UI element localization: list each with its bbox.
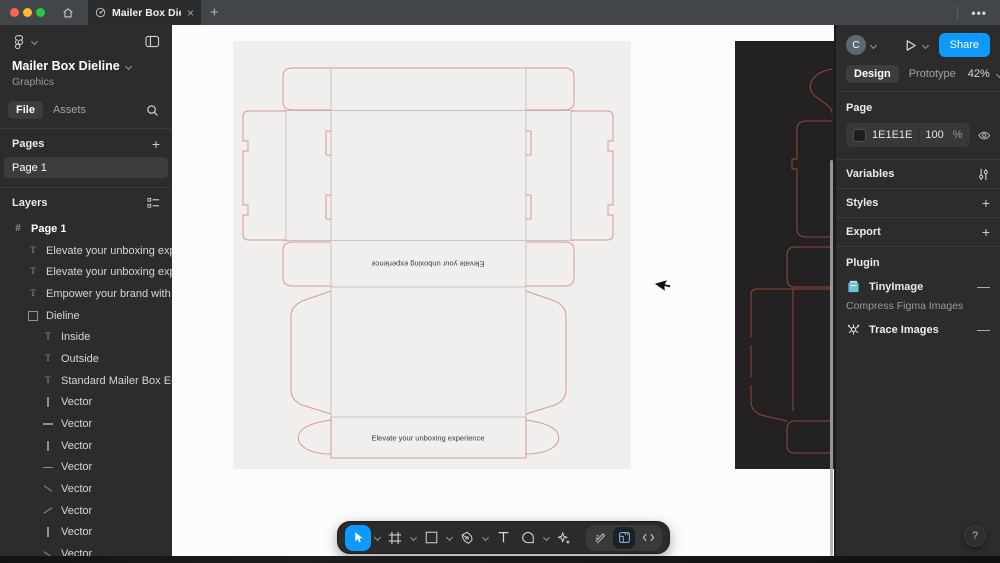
layer-row-page-1[interactable]: #Page 1 <box>0 218 172 240</box>
text-layer-icon: T <box>42 331 54 343</box>
layer-label: Elevate your unboxing experience <box>46 266 172 278</box>
project-name[interactable]: Graphics <box>0 73 172 94</box>
text-layer-icon: T <box>27 245 39 257</box>
shape-tool-chevron-icon[interactable] <box>444 526 454 550</box>
close-tab-icon[interactable]: × <box>187 6 194 20</box>
layers-list: #Page 1TElevate your unboxing experience… <box>0 216 172 556</box>
plugin-section-header: Plugin <box>846 257 990 269</box>
plugin-row-tinyimage[interactable]: TinyImage — <box>836 273 1000 300</box>
rectangle-tool-icon <box>425 531 438 544</box>
layer-label: Page 1 <box>31 223 66 235</box>
present-play-icon[interactable] <box>903 38 918 53</box>
code-icon <box>642 531 655 544</box>
variables-sliders-icon[interactable] <box>977 168 990 181</box>
plugin-row-trace-images[interactable]: Trace Images — <box>836 316 1000 343</box>
text-layer-icon: T <box>42 375 54 387</box>
overflow-menu-button[interactable]: ••• <box>958 6 1000 20</box>
help-button[interactable]: ? <box>964 525 986 547</box>
actions-tool-button[interactable] <box>552 526 576 550</box>
dieline-artwork <box>233 41 631 469</box>
layer-row-vector[interactable]: Vector <box>0 500 172 522</box>
layer-row-inside[interactable]: TInside <box>0 326 172 348</box>
artboard-dieline-dark[interactable] <box>735 41 834 469</box>
toggle-sidebar-icon[interactable] <box>145 35 160 48</box>
visibility-eye-icon[interactable] <box>978 130 990 141</box>
variables-section-header[interactable]: Variables <box>846 168 894 180</box>
page-section-header: Page <box>846 102 990 114</box>
rect-layer-icon <box>27 310 39 322</box>
layer-label: Dieline <box>46 310 80 322</box>
layer-label: Vector <box>61 396 92 408</box>
text-layer-icon: T <box>42 353 54 365</box>
dev-mode-group <box>586 525 662 551</box>
file-tab[interactable]: Mailer Box Dieline × <box>88 0 201 25</box>
canvas[interactable]: Elevate your unboxing experience Elevate… <box>172 25 834 556</box>
text-tool-button[interactable] <box>491 526 515 550</box>
frame-layer-icon: # <box>12 223 24 235</box>
minimize-window-button[interactable] <box>23 8 32 17</box>
layer-label: Elevate your unboxing experience <box>46 245 172 257</box>
layer-row-dieline[interactable]: Dieline <box>0 305 172 327</box>
plugin-name: Trace Images <box>869 324 939 336</box>
page-item-page-1[interactable]: Page 1 <box>4 157 168 178</box>
layer-label: Vector <box>61 526 92 538</box>
layer-label: Inside <box>61 331 90 343</box>
pen-tool-chevron-icon[interactable] <box>480 526 490 550</box>
layer-label: Vector <box>61 483 92 495</box>
layer-row-elevate-your-unboxing-experience[interactable]: TElevate your unboxing experience <box>0 261 172 283</box>
hline-layer-icon <box>42 461 54 473</box>
layer-label: Vector <box>61 418 92 430</box>
shape-tool-button[interactable] <box>419 526 443 550</box>
trace-images-plugin-icon <box>846 322 861 337</box>
menu-chevron-icon[interactable] <box>31 38 38 45</box>
tab-file[interactable]: File <box>8 101 43 119</box>
artboard-dieline-light[interactable]: Elevate your unboxing experience Elevate… <box>233 41 631 469</box>
layer-row-elevate-your-unboxing-experience[interactable]: TElevate your unboxing experience <box>0 240 172 262</box>
titlebar: Mailer Box Dieline × + ••• <box>0 0 1000 25</box>
layer-row-vector[interactable]: Vector <box>0 392 172 414</box>
right-sidebar: C Share Design Prototype 42% Page <box>834 25 1000 556</box>
remove-plugin-button[interactable]: — <box>977 322 990 337</box>
fullscreen-window-button[interactable] <box>36 8 45 17</box>
add-export-button[interactable]: + <box>982 227 990 237</box>
design-file-icon <box>95 7 106 18</box>
sparkle-icon <box>557 531 571 545</box>
layer-label: Vector <box>61 440 92 452</box>
canvas-text-rotated[interactable]: Elevate your unboxing experience <box>372 260 485 269</box>
dev-mode-toggle[interactable] <box>613 527 635 549</box>
figma-menu-icon[interactable] <box>12 34 27 49</box>
home-icon <box>61 6 75 20</box>
layer-row-vector[interactable]: Vector <box>0 413 172 435</box>
move-tool-button[interactable] <box>345 525 371 551</box>
remove-plugin-button[interactable]: — <box>977 279 990 294</box>
dline-layer-icon <box>42 548 54 556</box>
home-button[interactable] <box>61 6 75 20</box>
layer-label: Empower your brand with custom <box>46 288 172 300</box>
layer-label: Vector <box>61 505 92 517</box>
layer-row-vector[interactable]: Vector <box>0 478 172 500</box>
share-button[interactable]: Share <box>939 33 990 57</box>
bottom-toolbar <box>337 521 670 554</box>
account-chevron-icon[interactable] <box>870 42 877 49</box>
present-chevron-icon[interactable] <box>922 42 929 49</box>
dieline-dark-artwork <box>735 41 834 469</box>
pen-tool-button[interactable] <box>455 526 479 550</box>
tab-design[interactable]: Design <box>846 65 899 83</box>
ruler-icon <box>618 531 631 544</box>
file-name-title[interactable]: Mailer Box Dieline <box>12 59 120 73</box>
layer-label: Standard Mailer Box E-flute ( <box>61 375 172 387</box>
pages-header: Pages <box>12 138 44 150</box>
layer-row-outside[interactable]: TOutside <box>0 348 172 370</box>
layers-options-icon[interactable] <box>147 197 160 209</box>
vline-layer-icon <box>42 440 54 452</box>
layer-row-vector[interactable]: Vector <box>0 435 172 457</box>
marker-icon <box>594 531 607 544</box>
pen-tool-icon <box>460 531 474 545</box>
layer-row-empower-your-brand-with-custom[interactable]: TEmpower your brand with custom <box>0 283 172 305</box>
plugin-name: TinyImage <box>869 281 923 293</box>
layer-row-vector[interactable]: Vector <box>0 543 172 556</box>
color-swatch[interactable] <box>853 129 866 142</box>
hline-layer-icon <box>42 418 54 430</box>
layer-label: Outside <box>61 353 99 365</box>
move-tool-chevron-icon[interactable] <box>372 526 382 550</box>
code-view-button[interactable] <box>637 527 659 549</box>
tinyimage-plugin-icon <box>846 279 861 294</box>
layers-header: Layers <box>12 197 47 209</box>
frame-tool-button[interactable] <box>383 526 407 550</box>
zoom-level[interactable]: 42% <box>968 68 990 80</box>
plugin-description: Compress Figma Images <box>836 300 1000 316</box>
figma-app-window: Mailer Box Dieline × + ••• Mailer Box Di… <box>0 0 1000 563</box>
layer-row-vector[interactable]: Vector <box>0 522 172 544</box>
canvas-scrollbar[interactable] <box>830 160 833 556</box>
vline-layer-icon <box>42 526 54 538</box>
file-tab-title: Mailer Box Dieline <box>112 7 181 19</box>
file-name-chevron-icon[interactable] <box>125 63 132 70</box>
tab-assets[interactable]: Assets <box>45 101 94 119</box>
layer-row-standard-mailer-box-e-flute[interactable]: TStandard Mailer Box E-flute ( <box>0 370 172 392</box>
comment-tool-icon <box>521 531 535 545</box>
move-tool-icon <box>352 531 365 544</box>
styles-section-header[interactable]: Styles <box>846 197 878 209</box>
text-layer-icon: T <box>27 288 39 300</box>
text-layer-icon: T <box>27 266 39 278</box>
avatar[interactable]: C <box>846 35 866 55</box>
vline-layer-icon <box>42 396 54 408</box>
comment-tool-button[interactable] <box>516 526 540 550</box>
add-style-button[interactable]: + <box>982 198 990 208</box>
divider <box>918 128 919 142</box>
canvas-text-bottom[interactable]: Elevate your unboxing experience <box>372 434 485 443</box>
left-sidebar: Mailer Box Dieline Graphics File Assets … <box>0 25 172 556</box>
dline-layer-icon <box>42 483 54 495</box>
export-section-header[interactable]: Export <box>846 226 881 238</box>
tab-prototype[interactable]: Prototype <box>901 65 964 83</box>
cursor <box>653 275 673 295</box>
layer-label: Vector <box>61 548 92 556</box>
close-window-button[interactable] <box>10 8 19 17</box>
add-page-button[interactable]: + <box>152 139 160 149</box>
comment-tool-chevron-icon[interactable] <box>541 526 551 550</box>
draw-annotate-button[interactable] <box>589 527 611 549</box>
new-tab-button[interactable]: + <box>210 4 219 21</box>
layer-row-vector[interactable]: Vector <box>0 457 172 479</box>
page-color-input[interactable]: 1E1E1E 100% <box>846 123 970 147</box>
screen-edge <box>0 556 1000 563</box>
opacity-unit: % <box>953 129 963 141</box>
frame-tool-chevron-icon[interactable] <box>408 526 418 550</box>
opacity-value[interactable]: 100 <box>925 129 943 141</box>
color-hex-value[interactable]: 1E1E1E <box>872 129 912 141</box>
layer-label: Vector <box>61 461 92 473</box>
window-controls <box>10 8 45 17</box>
search-icon[interactable] <box>146 104 159 117</box>
dline2-layer-icon <box>42 505 54 517</box>
frame-tool-icon <box>388 531 402 545</box>
text-tool-icon <box>497 531 510 544</box>
